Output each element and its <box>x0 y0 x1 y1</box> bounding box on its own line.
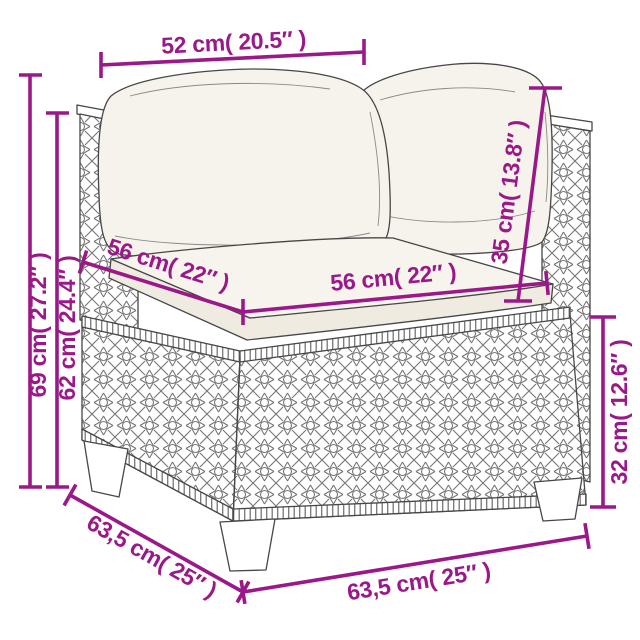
back-cushion-left <box>98 69 390 258</box>
product-dimension-image: 52 cm( 20.5″ ) 69 cm( 27.2″ ) 62 cm( 24.… <box>0 0 640 640</box>
dim-overall-height: 69 cm( 27.2″ ) <box>19 75 51 487</box>
dim-overall-depth-label: 63,5 cm( 25″ ) <box>82 509 221 603</box>
dim-base-height: 32 cm( 12.6″ ) <box>590 317 632 507</box>
dim-frame-height-label: 62 cm( 24.4″ ) <box>54 256 80 401</box>
dimension-diagram-canvas: 52 cm( 20.5″ ) 69 cm( 27.2″ ) 62 cm( 24.… <box>0 0 640 640</box>
sofa-leg-left <box>84 441 128 497</box>
dim-base-height-label: 32 cm( 12.6″ ) <box>606 340 632 485</box>
sofa-leg-right <box>534 478 582 521</box>
dim-top-width-label: 52 cm( 20.5″ ) <box>161 25 307 59</box>
dim-overall-height-label: 69 cm( 27.2″ ) <box>25 253 51 398</box>
dim-overall-width: 63,5 cm( 25″ ) <box>241 523 589 605</box>
sofa-leg-front <box>220 519 275 571</box>
dim-frame-height: 62 cm( 24.4″ ) <box>46 113 80 487</box>
